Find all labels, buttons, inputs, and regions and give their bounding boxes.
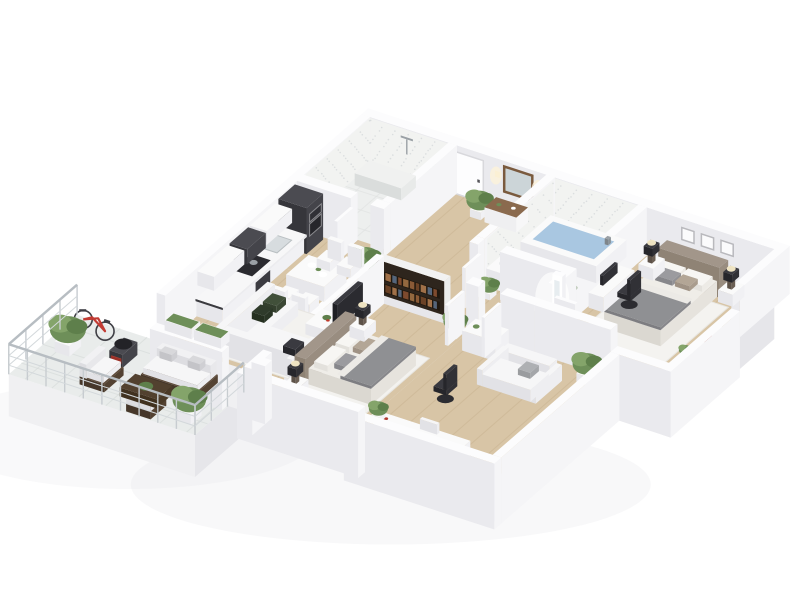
plate-1 xyxy=(307,262,316,267)
console-decor-2 xyxy=(511,207,516,210)
floorplan-stage xyxy=(0,0,800,613)
sconce-left-glow xyxy=(490,166,502,184)
floorplan-3d-render xyxy=(0,0,800,613)
console-decor xyxy=(496,203,501,206)
coffee-flowers xyxy=(322,315,331,320)
dresser-plant xyxy=(473,324,480,328)
wall-shower-south-b xyxy=(370,199,390,257)
coffee-flower-red xyxy=(326,319,330,321)
dining-chair-2-back xyxy=(348,243,365,269)
plate-2 xyxy=(318,272,327,277)
shower-column xyxy=(406,139,407,155)
wall-living-terrace-stub xyxy=(252,356,272,424)
dining-chair-1-back xyxy=(328,236,345,262)
